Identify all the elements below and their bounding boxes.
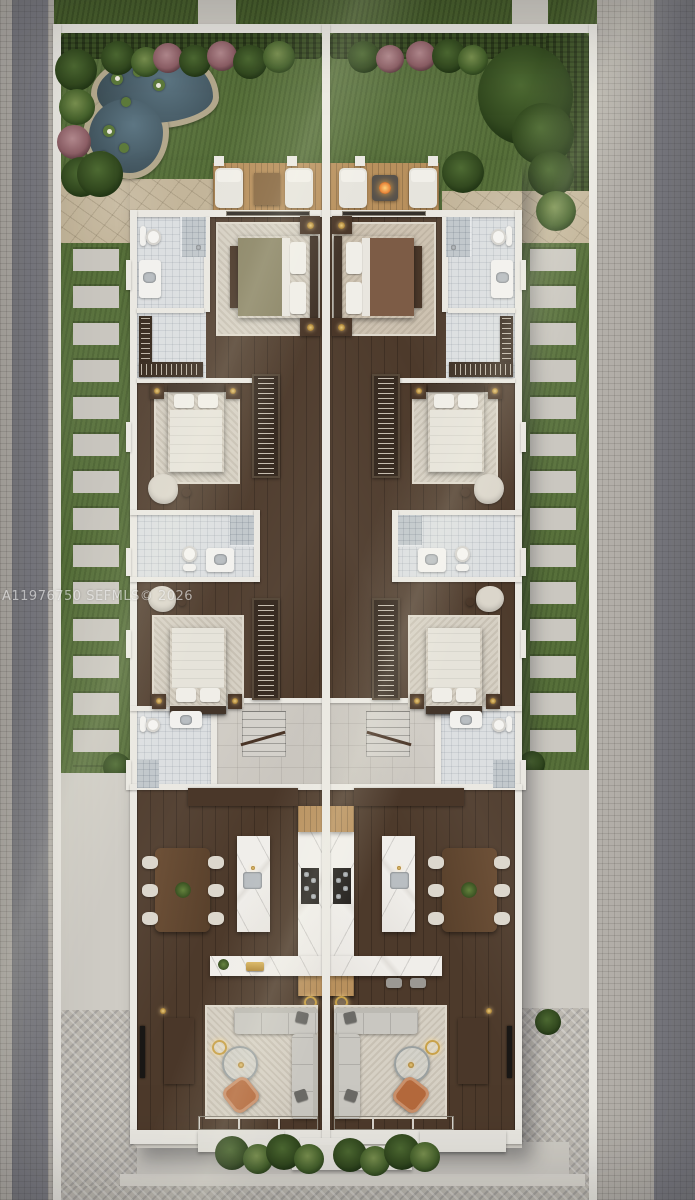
toilet-bowl <box>492 718 506 732</box>
burner <box>343 886 348 891</box>
lounge-chair <box>339 168 367 208</box>
nightstand <box>332 216 352 234</box>
faucet <box>397 866 401 870</box>
dining-chair <box>208 912 224 925</box>
garden-shrub <box>536 191 576 231</box>
lily-pad <box>119 143 129 153</box>
garden-shrub <box>101 41 135 75</box>
bed-pillow <box>290 282 306 314</box>
island-sink <box>390 872 409 889</box>
dining-table <box>442 848 497 932</box>
interior-wall <box>392 378 515 383</box>
faucet <box>251 866 255 870</box>
lounge-chair <box>409 168 437 208</box>
wardrobe-closet <box>252 374 280 478</box>
dining-chair <box>142 856 158 869</box>
nightstand <box>228 694 242 709</box>
bed-duvet <box>430 410 482 472</box>
dining-chair <box>428 912 444 925</box>
side-table <box>466 598 474 606</box>
interior-wall <box>211 706 217 788</box>
window-bay <box>126 260 131 290</box>
dining-chair <box>428 884 444 897</box>
garden-shrub <box>179 45 211 77</box>
shower <box>230 515 254 547</box>
bedroom2-bed <box>168 384 224 472</box>
garden-shrub <box>59 89 95 125</box>
garden-shrub <box>263 41 295 73</box>
shower-glass <box>180 217 182 257</box>
toilet-tank <box>506 226 512 246</box>
right-boundary-fence <box>589 24 597 1200</box>
table-decor <box>408 1062 414 1068</box>
aerial-floor-plan-rendering: A11976750 SEFMLS© 2026 <box>0 0 695 1200</box>
bed-pillow <box>458 394 478 408</box>
counter-wood-section <box>330 806 354 832</box>
toilet-bowl <box>182 546 197 562</box>
shower <box>180 217 206 257</box>
table-lamp <box>414 698 420 704</box>
bed-pillow <box>456 688 476 702</box>
kitchen-wall-cabinets <box>188 788 298 806</box>
bar-counter <box>210 956 322 976</box>
closet-rack <box>139 362 203 377</box>
master-bed <box>238 236 318 318</box>
bed-pillow <box>346 242 362 274</box>
bar-counter <box>330 956 442 976</box>
sink-basin <box>425 554 438 565</box>
unit-right <box>330 160 522 1148</box>
rear-lounge-deck <box>213 163 322 212</box>
window-bay <box>521 422 526 452</box>
toilet <box>182 546 197 572</box>
deck-post <box>214 156 224 166</box>
toilet-tank <box>183 564 196 571</box>
shower-glass <box>398 545 422 547</box>
side-concrete-strip <box>61 773 130 1013</box>
bed-pillow <box>198 394 218 408</box>
table-lamp <box>416 388 422 394</box>
interior-wall <box>254 510 260 582</box>
lily-pad <box>121 97 131 107</box>
bed-headboard <box>310 236 318 318</box>
cooktop <box>301 868 319 904</box>
planter-plant <box>410 1142 440 1172</box>
toilet <box>490 226 512 248</box>
side-table <box>461 488 470 497</box>
dining-chair <box>142 912 158 925</box>
nightstand <box>152 694 166 709</box>
lily-flower <box>115 76 120 81</box>
bed-sheet-fold <box>282 238 290 316</box>
table-lamp <box>154 388 160 394</box>
dining-chair <box>208 856 224 869</box>
sink-basin <box>180 715 192 725</box>
reading-armchair <box>148 474 178 504</box>
interior-wall <box>392 577 522 582</box>
bed-pillow <box>176 688 196 702</box>
burner <box>336 878 341 883</box>
wardrobe-closet <box>372 598 400 700</box>
bathroom-vanity <box>418 548 446 572</box>
table-lamp <box>156 698 162 704</box>
mls-watermark: A11976750 SEFMLS© 2026 <box>2 589 193 604</box>
fire-pit <box>372 175 398 201</box>
sink-basin <box>460 715 472 725</box>
sink-basin <box>496 272 509 283</box>
bed-duvet <box>428 628 480 688</box>
floor-lamp <box>160 1008 166 1014</box>
garden-shrub <box>233 45 267 79</box>
driveway-shadow-overlay <box>654 0 695 1200</box>
side-table <box>182 488 191 497</box>
table-centerpiece-plant <box>175 882 191 898</box>
counter-decor <box>210 956 322 976</box>
table-lamp <box>492 388 498 394</box>
garden-shrub <box>55 49 97 91</box>
nightstand <box>332 318 352 336</box>
dining-chair <box>494 884 510 897</box>
bed-headboard <box>168 384 224 392</box>
bed-duvet <box>172 628 224 688</box>
interior-wall <box>137 378 260 383</box>
bed-duvet <box>170 410 222 472</box>
table-decor <box>238 1062 244 1068</box>
bed-sheet-fold <box>362 238 370 316</box>
left-side-yard <box>61 243 130 1200</box>
window-bay <box>126 422 131 452</box>
dining-table <box>155 848 210 932</box>
bathroom-vanity <box>206 548 234 572</box>
bed-pillow <box>434 394 454 408</box>
gate-apron <box>512 0 548 25</box>
kitchen-island <box>382 836 415 932</box>
bed-duvet <box>364 238 414 316</box>
interior-wall <box>137 308 204 313</box>
toilet-bowl <box>146 229 161 245</box>
flowering-shrub <box>207 41 237 71</box>
party-wall <box>322 24 330 1150</box>
right-driveway-pavers <box>596 0 695 1200</box>
bathroom-vanity <box>170 711 202 728</box>
exterior-wall-side <box>130 210 137 1130</box>
bedroom3-bed <box>426 628 482 714</box>
toilet-tank <box>456 564 469 571</box>
lounge-chair <box>285 168 313 208</box>
staircase <box>242 711 286 757</box>
nightstand <box>300 216 320 234</box>
bed-pillow <box>174 394 194 408</box>
lily-flower <box>156 83 161 88</box>
front-glass-doors <box>198 1116 318 1130</box>
throw-pillow <box>295 1011 309 1024</box>
bedroom2-bed <box>428 384 484 472</box>
burner <box>311 878 316 883</box>
bathroom-vanity <box>139 260 161 298</box>
tv-console <box>458 1018 488 1084</box>
palm-plant <box>77 151 123 197</box>
toilet-bowl <box>455 546 470 562</box>
toilet-tank <box>506 716 512 732</box>
dining-chair <box>494 856 510 869</box>
lounge-chair <box>215 168 243 208</box>
table-lamp <box>232 698 238 704</box>
planter-plant <box>294 1144 324 1174</box>
interior-wall <box>435 706 441 788</box>
table-lamp <box>307 222 314 229</box>
bedroom3-bed <box>170 628 226 714</box>
shower-glass <box>470 217 472 257</box>
wall-tv <box>507 1026 512 1078</box>
bathroom-vanity <box>450 711 482 728</box>
wardrobe-closet <box>252 598 280 700</box>
floor-lamp <box>486 1008 492 1014</box>
toilet <box>140 226 162 248</box>
right-side-yard <box>519 243 589 1200</box>
table-lamp <box>230 388 236 394</box>
stepping-stones <box>530 247 576 762</box>
sectional-sofa-chaise <box>334 1034 360 1119</box>
unit-left <box>130 160 322 1148</box>
kitchen-wall-cabinets <box>354 788 464 806</box>
counter-wood-section <box>298 806 322 832</box>
window-bay <box>126 630 131 658</box>
nightstand <box>488 384 502 399</box>
sink-basin <box>214 554 227 565</box>
shower-drain <box>196 245 201 250</box>
bed-bench <box>230 246 238 308</box>
nightstand <box>226 384 240 399</box>
bed-headboard <box>428 384 484 392</box>
bathroom-vanity <box>491 260 513 298</box>
nightstand <box>150 384 164 399</box>
bed-pillow <box>346 282 362 314</box>
table-lamp <box>338 324 345 331</box>
stair-railing <box>366 731 411 747</box>
cooktop <box>333 868 351 904</box>
window-bay <box>521 548 526 576</box>
side-tray-table <box>425 1040 440 1055</box>
side-bush <box>535 1009 561 1035</box>
tv-console <box>164 1018 194 1084</box>
stepping-stones <box>73 247 119 767</box>
nightstand <box>412 384 426 399</box>
exterior-wall-side <box>515 210 522 1130</box>
table-lamp <box>307 324 314 331</box>
table-centerpiece-plant <box>461 882 477 898</box>
interior-wall <box>130 577 260 582</box>
toilet-bowl <box>146 718 160 732</box>
dining-chair <box>428 856 444 869</box>
dining-chair <box>494 912 510 925</box>
front-glass-doors <box>334 1116 454 1130</box>
deck-coffee-table <box>254 173 280 205</box>
burner <box>311 894 316 899</box>
counter-plant <box>218 959 229 970</box>
rear-lounge-deck <box>330 163 439 212</box>
shower-glass <box>230 545 254 547</box>
table-lamp <box>490 698 496 704</box>
staircase <box>366 711 410 757</box>
bar-stool <box>410 978 426 988</box>
dining-chair <box>142 884 158 897</box>
burner <box>304 886 309 891</box>
bed-pillow <box>290 242 306 274</box>
burner <box>336 894 341 899</box>
shower-drain <box>451 245 456 250</box>
bed-bench <box>414 246 422 308</box>
nightstand <box>300 318 320 336</box>
burner <box>343 872 348 877</box>
sink-basin <box>143 272 156 283</box>
interior-wall <box>448 308 515 313</box>
deck-post <box>355 156 365 166</box>
sectional-sofa-chaise <box>292 1034 318 1119</box>
stair-railing <box>240 731 285 747</box>
shower <box>398 515 422 547</box>
toilet <box>490 716 512 734</box>
bed-duvet <box>238 238 288 316</box>
bed-headboard <box>334 236 342 318</box>
window-bay <box>126 548 131 576</box>
side-concrete-strip <box>519 770 589 1010</box>
closet-rack <box>449 362 513 377</box>
flowering-shrub <box>57 125 91 159</box>
gate-apron <box>198 0 236 25</box>
bar-stool <box>386 978 402 988</box>
front-walkway <box>61 1186 589 1200</box>
shower <box>137 760 159 788</box>
nightstand <box>486 694 500 709</box>
toilet <box>455 546 470 572</box>
garden-shrub <box>528 151 574 197</box>
lily-flower <box>107 129 112 134</box>
toilet <box>140 716 162 734</box>
decor-tray <box>246 962 264 971</box>
bed-pillow <box>432 688 452 702</box>
left-boundary-fence <box>53 24 61 1200</box>
window-bay <box>521 260 526 290</box>
wardrobe-closet <box>372 374 400 478</box>
deck-sliding-door <box>342 211 426 216</box>
deck-sliding-door <box>226 211 310 216</box>
table-lamp <box>338 222 345 229</box>
dining-chair <box>208 884 224 897</box>
burner <box>304 872 309 877</box>
bed-pillow <box>200 688 220 702</box>
shower <box>446 217 472 257</box>
nightstand <box>410 694 424 709</box>
shower <box>493 760 515 788</box>
deck-post <box>287 156 297 166</box>
toilet-bowl <box>491 229 506 245</box>
master-bed <box>334 236 414 318</box>
kitchen-island <box>237 836 270 932</box>
wall-tv <box>140 1026 145 1078</box>
island-sink <box>243 872 262 889</box>
deck-post <box>428 156 438 166</box>
flowering-shrub <box>376 45 404 73</box>
window-bay <box>521 630 526 658</box>
